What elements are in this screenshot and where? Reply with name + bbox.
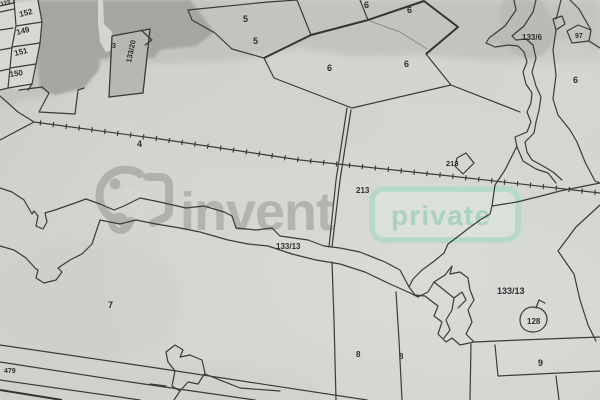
svg-text:6: 6 bbox=[573, 75, 578, 85]
svg-text:5: 5 bbox=[243, 14, 248, 24]
svg-text:133/13: 133/13 bbox=[276, 242, 301, 251]
svg-text:213: 213 bbox=[446, 159, 459, 168]
svg-text:5: 5 bbox=[253, 36, 258, 46]
svg-text:133/6: 133/6 bbox=[522, 33, 543, 42]
svg-text:479: 479 bbox=[4, 368, 16, 375]
svg-text:private: private bbox=[391, 200, 491, 231]
svg-text:97: 97 bbox=[575, 33, 583, 40]
svg-text:3: 3 bbox=[112, 43, 116, 50]
svg-text:150: 150 bbox=[9, 68, 24, 79]
svg-text:6: 6 bbox=[327, 63, 332, 73]
svg-text:213: 213 bbox=[356, 186, 370, 195]
svg-text:4: 4 bbox=[137, 139, 142, 149]
svg-text:6: 6 bbox=[407, 5, 412, 15]
svg-text:128: 128 bbox=[527, 317, 541, 326]
svg-text:9: 9 bbox=[538, 358, 543, 368]
svg-text:6: 6 bbox=[364, 0, 369, 10]
svg-text:8: 8 bbox=[356, 350, 361, 359]
svg-text:8: 8 bbox=[399, 352, 404, 361]
svg-text:7: 7 bbox=[108, 300, 113, 310]
svg-text:6: 6 bbox=[404, 59, 409, 69]
svg-text:133/13: 133/13 bbox=[497, 286, 525, 296]
